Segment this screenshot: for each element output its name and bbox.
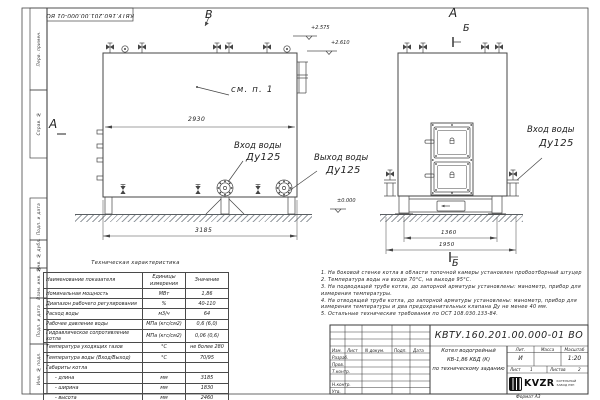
elev-2575: +2.575 [311,26,330,31]
spec-row: - высотамм2460 [44,393,229,400]
scale-value: 1:20 [561,352,588,365]
dim-2930: 2930 [188,117,205,123]
drawing-title-line3: по техническому заданию [432,365,504,374]
row-utv: Утв. [332,389,341,394]
row-prov: Пров. [332,362,344,367]
col-izm: Изм. [332,348,342,353]
note-5: 5. Остальные технические требования по О… [321,311,587,318]
dim-3185: 3185 [195,228,212,234]
boiler-doors [425,123,473,195]
sheet-value: 1 [530,367,533,372]
view-label-a-top: А [449,7,457,19]
sheet-label: Лист [510,367,521,372]
spec-row: Номинальная мощностьМВт1,86 [44,289,229,299]
doc-number: КВТУ.160.201.00.000-01 ВО [430,325,588,346]
sidebar-cell-podp-data-1: Подп. и дата [30,198,47,240]
row-tkontr: Т.контр. [332,369,350,374]
front-inlet-dn: Ду125 [539,139,574,149]
drawing-title-line2: КВ-1,86 КБД (К) [447,356,490,365]
spec-table: Наименование показателя Единицы измерени… [43,272,229,400]
side-outlet-dn: Ду125 [326,166,361,176]
spec-row: Гидравлическое сопротивление котлаМПа (к… [44,329,229,342]
spec-header-row: Наименование показателя Единицы измерени… [44,273,229,289]
note-3: 3. На подводящей трубе котла, до запорно… [321,284,587,297]
sidebar-cell-perv-primen: Перв. примен. [30,8,47,90]
spec-row: Диапазон рабочего регулирования%40-110 [44,299,229,309]
row-razrab: Разраб. [332,355,348,360]
spec-row: Габариты котла [44,363,229,373]
kvzr-logo-icon [509,377,522,391]
mass-label: Масса [534,346,561,353]
elev-zero: ±0.000 [337,199,356,204]
callout-see-note-1: см. п. 1 [231,86,273,95]
spec-row: - длинамм3185 [44,373,229,383]
spec-row: Температура воды (Вход/Выход)°С70/95 [44,352,229,362]
spec-row: Расход водым3/ч64 [44,309,229,319]
corner-stamp-number: КВТУ.160.201.00.000-01 ВО [46,12,134,18]
sidebar-cell-sprav-n: Справ. № [30,90,47,158]
elev-2610: +2.610 [331,41,350,46]
lit-value: И [507,352,534,365]
dim-1360: 1360 [441,231,457,237]
spec-row: - ширинамм1830 [44,383,229,393]
inlet-flange [217,180,233,196]
drawing-title: Котел водогрейный КВ-1,86 КБД (К) по тех… [430,346,507,375]
dim-1950: 1950 [439,243,455,249]
side-view [57,17,346,240]
col-data: Дата [413,348,424,353]
format-note: Формат А3 [516,395,540,400]
spec-table-title: Техническая характеристика [43,261,228,266]
drawing-sheet: КВТУ.160.201.00.000-01 ВО Перв. примен. … [0,0,600,400]
col-podp: Подп. [394,348,407,353]
note-2: 2. Температура воды на входе 70°С, на вы… [321,277,587,284]
note-4: 4. На отводящей трубе котла, до запорной… [321,298,587,311]
row-nkontr: Н.контр. [332,382,351,387]
col-list: Лист [347,348,358,353]
section-label-b-bottom: Б [452,259,459,269]
sheets-value: 2 [578,367,581,372]
front-inlet-label: Вход воды [527,126,574,135]
spec-row: Температура уходящих газов°Сне более 280 [44,342,229,352]
outlet-flange [276,180,292,196]
sheets-label: Листов [550,367,566,372]
view-label-v: В [205,9,213,20]
front-view [384,37,542,262]
logo-subtext: КОТЕЛЬНЫЙ ЗАВОД РЭП [557,380,577,388]
side-outlet-label: Выход воды [314,154,368,163]
note-1: 1. На боковой стенке котла в области топ… [321,270,587,277]
drawing-title-line1: Котел водогрейный [441,347,495,356]
corner-stamp: КВТУ.160.201.00.000-01 ВО [47,8,133,21]
side-inlet-label: Вход воды [234,142,281,151]
side-inlet-dn: Ду125 [246,153,281,163]
view-label-a-left: А [49,118,57,130]
door-handle [425,140,434,143]
manufacturer-logo: KVZR КОТЕЛЬНЫЙ ЗАВОД РЭП [509,374,587,393]
col-ndoc: N докум. [365,348,384,353]
section-label-b-top: Б [463,24,470,34]
door-handle [425,174,434,177]
technical-notes: 1. На боковой стенке котла в области топ… [321,270,587,318]
spec-row: Рабочее давление водыМПа (кгс/см2)0,6 (6… [44,319,229,329]
logo-text: KVZR [524,378,555,389]
